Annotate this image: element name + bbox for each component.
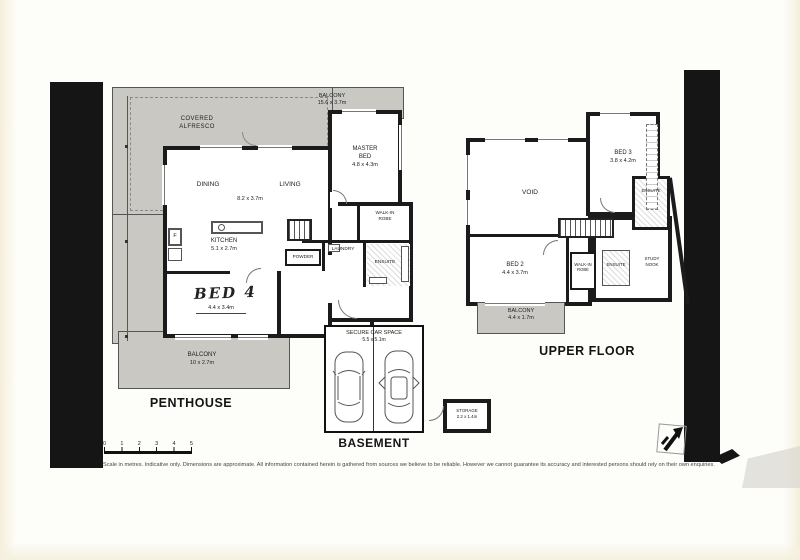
fridge-label: F [168,233,182,240]
scan-artifact-wedge [742,446,800,488]
scale-tick-label: 4 [173,441,176,447]
wall-laundry-top [302,240,410,243]
window [342,109,376,114]
pantry-box [168,248,182,261]
window [258,145,292,150]
bed4-label: BED 4 [194,283,255,305]
window [538,137,568,142]
penthouse-stairs [287,219,312,241]
upper-balcony-label: BALCONY 4.4 x 1.7m [489,308,553,322]
scale-tick-label: 2 [138,441,141,447]
window [238,335,268,340]
window [485,301,545,306]
window [600,111,630,116]
window [399,125,404,170]
disclaimer-text: Scale in metres. Indicative only. Dimens… [103,462,721,469]
bed3-label: BED 3 3.8 x 4.2m [598,150,648,165]
balcony-top-label: BALCONY 15.6 x 3.7m [300,93,364,107]
scan-black-bar-left [50,82,103,468]
window [465,155,470,190]
scale-bar: 0 1 2 3 4 5 [103,441,193,454]
master-bed-label: MASTER BED 4.8 x 4.3m [334,146,396,169]
wall-bed4-side [277,271,281,338]
scan-edge-bottom [0,542,800,560]
walk-in-robe-label: WALK-IN ROBE [366,210,404,222]
penthouse-balcony-left-area [112,214,169,344]
window [485,137,525,142]
scale-tick-label: 1 [120,441,123,447]
basement-title: BASEMENT [324,436,424,450]
scale-tick-label: 3 [155,441,158,447]
living-label: LIVING [268,181,312,189]
upper-walk-in-robe-label: WALK-IN ROBE [570,262,596,273]
dining-label: DINING [186,181,230,189]
upper-floor-title: UPPER FLOOR [527,344,647,358]
ensuite-vanity [369,277,387,284]
window [162,165,167,205]
door-arc-storage [429,406,444,421]
car-space-label: SECURE CAR SPACE 5.5 x 5.1m [326,330,422,344]
wall-bed2-right [566,237,569,303]
kitchen-label: KITCHEN 5.1 x 2.7m [198,238,250,253]
window [200,145,242,150]
upper-ensuite2-floor [602,250,630,286]
laundry-label: LAUNDRY [324,247,362,253]
balcony-bottom-label: BALCONY 10 x 2.7m [172,352,232,367]
void-label: VOID [505,189,555,197]
window [175,335,231,340]
upper-stairs [558,218,614,238]
scale-tick-label: 0 [103,441,106,447]
wall-robe [357,206,360,242]
scan-edge-left [0,0,16,560]
upper-ensuite-bed3-room [632,176,670,230]
scale-bar-line [104,451,192,454]
floor-plan-page: F BALCONY 15.6 x 3.7m COVERED ALFRESCO M… [0,0,800,560]
study-nook-label: STUDY NOOK [638,256,666,267]
wall-laundry-ensuite [363,243,366,287]
ensuite-bath [401,246,409,282]
storage-label: STORAGE 2.2 x 1.4m [447,408,487,419]
scan-black-bar-right [684,70,720,462]
scale-tick-label: 5 [190,441,193,447]
bed2-label: BED 2 4.4 x 3.7m [492,262,538,277]
ensuite-label: ENSUITE [368,260,402,266]
ensuite-bed2-label: ENSUITE [601,262,631,268]
bed4-dims-label: 4.4 x 3.4m [196,305,246,314]
kitchen-sink [218,224,225,231]
penthouse-title: PENTHOUSE [131,396,251,410]
window [465,200,470,225]
ensuite-bed3-label: ENSUITE [634,188,668,194]
powder-label: POWDER [285,254,321,260]
scan-edge-right [784,0,800,560]
covered-alfresco-label: COVERED ALFRESCO [166,116,228,132]
opening-living-hall [327,255,337,303]
wall-bed4-top [166,271,230,274]
living-dims-label: 8.2 x 3.7m [226,196,274,203]
scale-ticks [104,447,192,451]
